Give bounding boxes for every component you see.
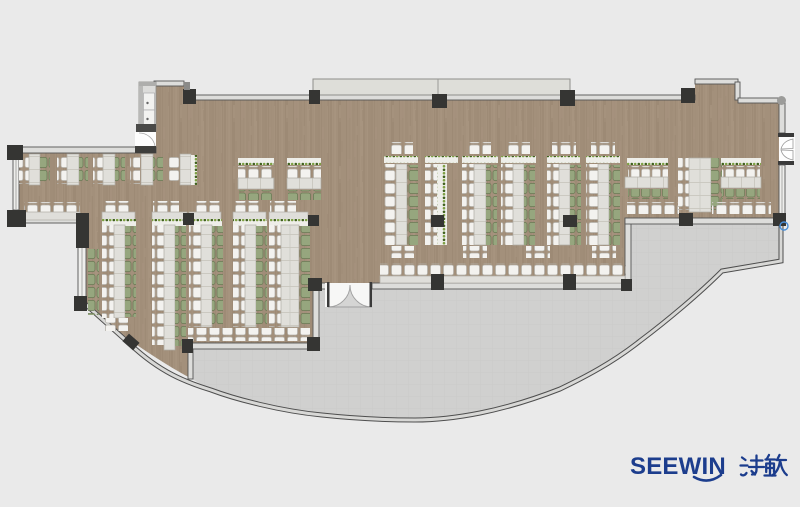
svg-text:SEEWIN: SEEWIN [630,453,726,480]
